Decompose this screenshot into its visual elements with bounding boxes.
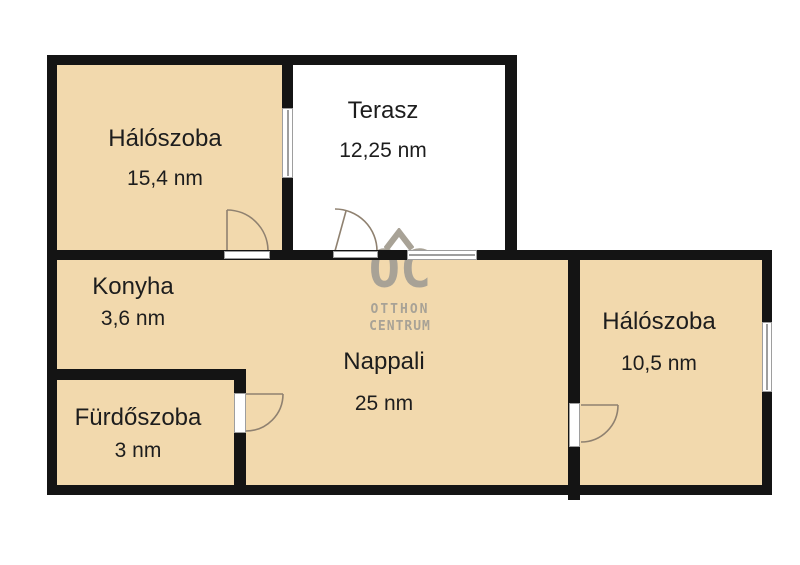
wall-bottom xyxy=(47,485,772,495)
room-name: Hálószoba xyxy=(65,125,265,153)
room-area: 12,25 nm xyxy=(283,137,483,165)
room-label-kitchen: Konyha 3,6 nm xyxy=(33,273,233,333)
room-name: Konyha xyxy=(33,273,233,301)
bedroom2-window xyxy=(762,322,772,392)
room-area: 15,4 nm xyxy=(65,165,265,193)
terrace-living-window xyxy=(407,250,477,260)
room-area: 3 nm xyxy=(38,437,238,465)
room-area: 3,6 nm xyxy=(33,305,233,333)
floorplan-canvas: OC OTTHON CENTRUM Hálószoba 15,4 nm Tera… xyxy=(0,0,800,565)
room-label-bedroom1: Hálószoba 15,4 nm xyxy=(65,125,265,193)
terrace-door-threshold xyxy=(333,251,378,258)
wall-bathroom-top xyxy=(47,369,246,380)
room-label-living: Nappali 25 nm xyxy=(284,348,484,418)
room-area: 10,5 nm xyxy=(559,350,759,378)
room-label-bedroom2: Hálószoba 10,5 nm xyxy=(559,308,759,378)
room-name: Nappali xyxy=(284,348,484,376)
room-name: Terasz xyxy=(283,97,483,125)
room-label-bathroom: Fürdőszoba 3 nm xyxy=(38,404,238,465)
watermark-line2: CENTRUM xyxy=(355,320,445,333)
room-label-terrace: Terasz 12,25 nm xyxy=(283,97,483,165)
watermark-line1: OTTHON xyxy=(355,303,445,316)
room-name: Fürdőszoba xyxy=(38,404,238,432)
room-name: Hálószoba xyxy=(559,308,759,336)
room-area: 25 nm xyxy=(284,390,484,418)
bedroom1-door-threshold xyxy=(224,251,270,259)
wall-terrace-right xyxy=(505,55,517,260)
bedroom2-door-jamb xyxy=(569,403,580,447)
